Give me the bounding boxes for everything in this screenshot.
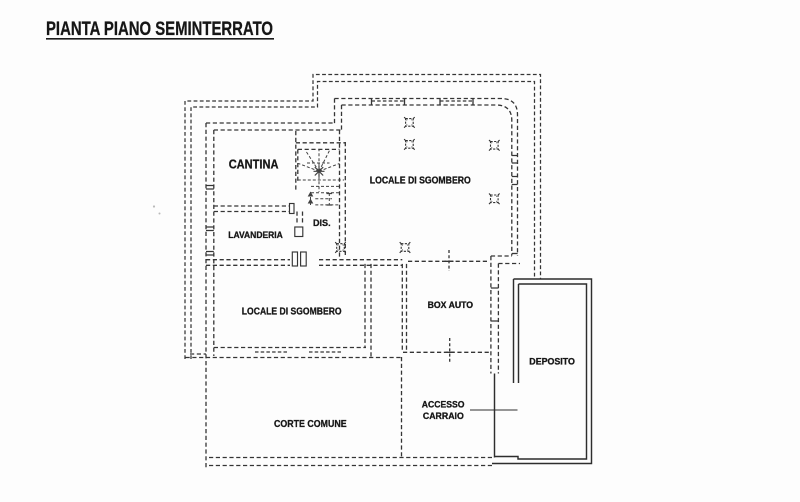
- svg-text:CORTE COMUNE: CORTE COMUNE: [274, 419, 347, 430]
- svg-text:DEPOSITO: DEPOSITO: [529, 356, 575, 366]
- svg-text:CARRAIO: CARRAIO: [423, 411, 464, 421]
- svg-text:LOCALE DI SGOMBERO: LOCALE DI SGOMBERO: [370, 176, 471, 187]
- svg-text:LAVANDERIA: LAVANDERIA: [228, 230, 283, 240]
- svg-text:LOCALE DI SGOMBERO: LOCALE DI SGOMBERO: [242, 306, 342, 317]
- svg-text:DIS.: DIS.: [313, 218, 331, 228]
- svg-text:PIANTA PIANO SEMINTERRATO: PIANTA PIANO SEMINTERRATO: [46, 18, 273, 40]
- svg-text:BOX AUTO: BOX AUTO: [428, 300, 474, 310]
- svg-text:CANTINA: CANTINA: [229, 158, 279, 172]
- svg-text:ACCESSO: ACCESSO: [422, 400, 465, 410]
